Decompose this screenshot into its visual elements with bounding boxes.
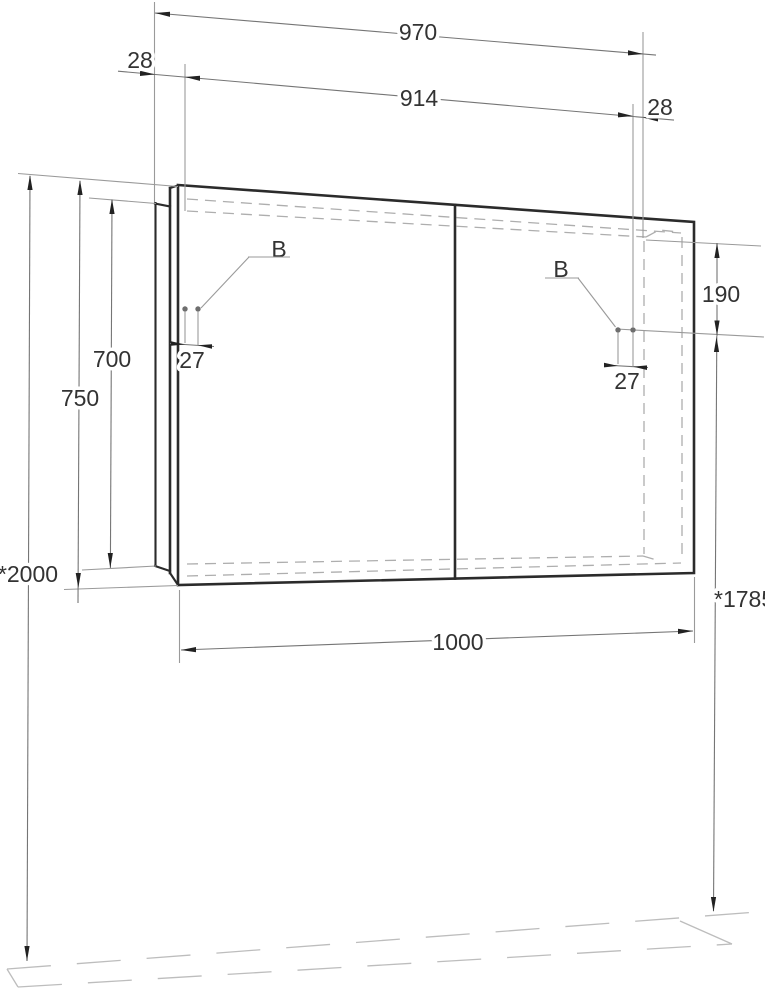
- floor-bottom-edge: [18, 944, 732, 987]
- cabinet-installation-drawing: 970 28 914 28 190 27 27 700 750 *2000 *1…: [0, 0, 765, 1000]
- arrowhead: [109, 199, 114, 214]
- extension-line: [89, 198, 156, 204]
- dimension-arrows: [24, 12, 719, 961]
- dimension-lines: [27, 13, 717, 961]
- arrowhead: [628, 50, 643, 55]
- hinge-dot: [615, 327, 620, 332]
- floor-right-cap: [680, 921, 732, 944]
- arrowhead: [77, 180, 82, 195]
- dim-label-2000: *2000: [0, 561, 58, 587]
- extension-line: [64, 586, 178, 590]
- arrowhead: [714, 321, 719, 336]
- arrowhead: [181, 647, 196, 652]
- hinge-axis-line: [616, 329, 764, 337]
- arrowhead: [155, 12, 170, 17]
- floor-top-edge: [7, 912, 757, 969]
- dim-label-190: 190: [702, 281, 740, 307]
- hinge-dots: [182, 306, 635, 332]
- dim-label-1785: *1785: [714, 586, 765, 612]
- arrowhead: [711, 897, 716, 912]
- carcass-bottom-join: [155, 566, 170, 571]
- arrowhead: [678, 629, 693, 634]
- arrowhead: [714, 243, 719, 258]
- extension-line: [646, 240, 761, 246]
- technical-drawing-page: 970 28 914 28 190 27 27 700 750 *2000 *1…: [0, 0, 765, 1000]
- dim-label-28-left: 28: [127, 47, 153, 73]
- arrowhead: [108, 553, 113, 568]
- dim-label-1000: 1000: [432, 629, 483, 655]
- label-leader: [201, 257, 249, 308]
- hidden-corner: [646, 230, 679, 237]
- dim-label-27-left: 27: [179, 347, 205, 373]
- arrowhead: [76, 573, 81, 588]
- arrowhead: [27, 175, 32, 190]
- floor-left-cap: [7, 969, 18, 987]
- dim-label-28-right: 28: [647, 94, 673, 120]
- hidden-corner: [643, 556, 660, 561]
- hinge-dot: [195, 306, 200, 311]
- arrowhead: [604, 363, 618, 368]
- arrowhead: [714, 337, 719, 352]
- dim-label-914: 914: [400, 85, 439, 111]
- dim-label-27-right: 27: [614, 368, 640, 394]
- extension-line: [82, 566, 156, 570]
- hinge-label-b-left: B: [271, 236, 286, 262]
- dim-line-914-28: [118, 71, 674, 120]
- cabinet-outline: [155, 185, 694, 585]
- carcass-top-join: [155, 204, 170, 207]
- hinge-dot: [630, 327, 635, 332]
- dimension-labels: 970 28 914 28 190 27 27 700 750 *2000 *1…: [0, 19, 765, 655]
- label-leader: [578, 278, 616, 327]
- dim-label-700: 700: [93, 346, 131, 372]
- dim-line-700: [110, 200, 112, 568]
- dim-line-1785: [714, 336, 717, 911]
- dim-label-750: 750: [61, 385, 99, 411]
- dim-label-970: 970: [399, 19, 437, 45]
- arrowhead: [185, 76, 200, 81]
- hidden-edges: [187, 199, 682, 576]
- arrowhead: [24, 946, 29, 961]
- hidden-bottom-edge: [187, 556, 643, 564]
- hinge-dot: [182, 306, 187, 311]
- floor: [7, 912, 757, 987]
